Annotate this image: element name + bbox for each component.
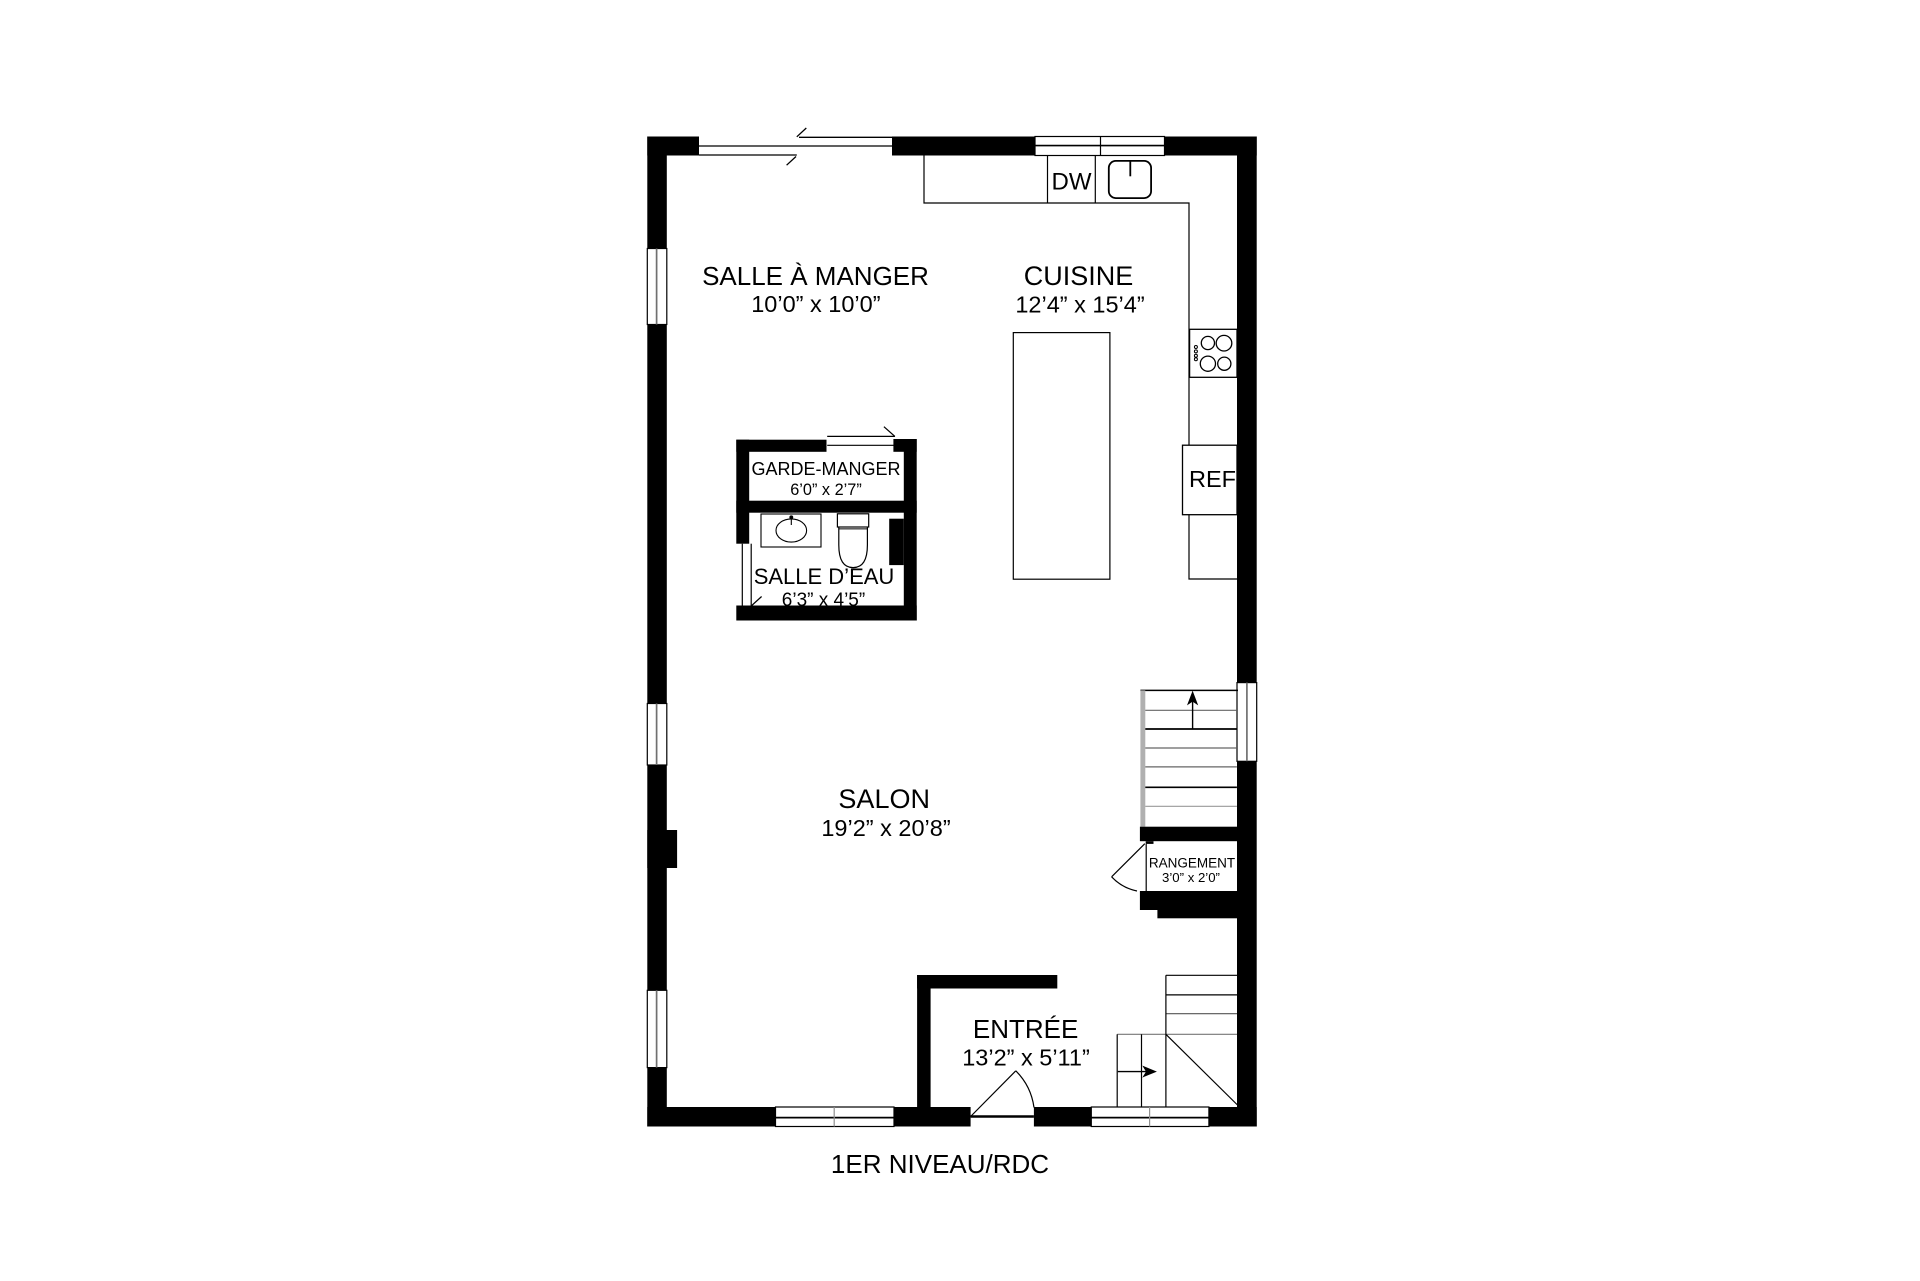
svg-text:19’2” x 20’8”: 19’2” x 20’8”	[821, 815, 950, 841]
svg-text:3’0” x 2’0”: 3’0” x 2’0”	[1162, 870, 1220, 885]
svg-text:1ER NIVEAU/RDC: 1ER NIVEAU/RDC	[831, 1149, 1049, 1179]
svg-text:REF: REF	[1189, 466, 1236, 492]
svg-text:CUISINE: CUISINE	[1024, 261, 1134, 291]
svg-text:RANGEMENT: RANGEMENT	[1149, 856, 1235, 871]
svg-text:6’0” x 2’7”: 6’0” x 2’7”	[790, 481, 862, 499]
svg-text:ENTRÉE: ENTRÉE	[973, 1014, 1078, 1044]
svg-text:SALON: SALON	[838, 784, 930, 814]
svg-text:13’2” x 5’11”: 13’2” x 5’11”	[962, 1045, 1090, 1071]
svg-text:6’3” x 4’5”: 6’3” x 4’5”	[782, 590, 865, 611]
svg-text:SALLE À MANGER: SALLE À MANGER	[702, 261, 929, 291]
svg-text:12’4” x 15’4”: 12’4” x 15’4”	[1015, 292, 1144, 318]
svg-text:SALLE D’EAU: SALLE D’EAU	[754, 564, 895, 589]
svg-text:GARDE-MANGER: GARDE-MANGER	[751, 459, 900, 479]
svg-text:10’0” x 10’0”: 10’0” x 10’0”	[751, 291, 880, 317]
svg-text:DW: DW	[1052, 169, 1092, 196]
